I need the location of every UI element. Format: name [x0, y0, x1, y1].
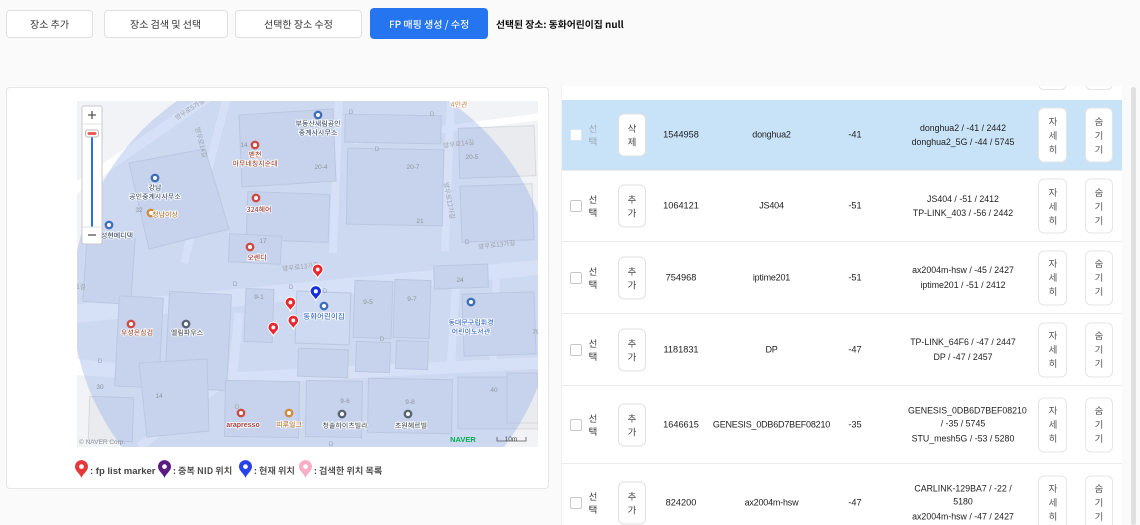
svg-text:NAVER: NAVER [450, 435, 476, 444]
svg-text:9-1: 9-1 [254, 294, 264, 301]
svg-text:arapresso: arapresso [226, 422, 259, 429]
svg-text:30: 30 [96, 384, 104, 391]
svg-text:D: D [235, 405, 240, 411]
svg-text:D: D [98, 359, 103, 365]
svg-text:21: 21 [416, 218, 424, 225]
svg-text:D: D [375, 147, 380, 153]
svg-text:9-8: 9-8 [405, 399, 415, 406]
svg-text:17: 17 [259, 238, 267, 245]
svg-text:D: D [233, 282, 238, 288]
svg-text:D: D [323, 289, 328, 295]
svg-text:20-7: 20-7 [406, 164, 419, 171]
svg-text:9-5: 9-5 [363, 299, 373, 306]
svg-text:9-6: 9-6 [340, 398, 350, 405]
svg-text:D: D [349, 110, 354, 116]
svg-text:14: 14 [240, 142, 248, 149]
svg-text:79: 79 [532, 329, 538, 336]
svg-text:9-7: 9-7 [407, 296, 417, 303]
svg-text:40: 40 [490, 387, 498, 394]
svg-text:D: D [430, 112, 435, 118]
svg-text:D: D [289, 285, 294, 291]
svg-text:D: D [329, 442, 334, 447]
svg-text:20-5: 20-5 [465, 154, 478, 161]
svg-text:20-4: 20-4 [314, 164, 327, 171]
svg-text:10m: 10m [505, 436, 518, 443]
svg-text:© NAVER Corp.: © NAVER Corp. [79, 438, 125, 446]
svg-text:D: D [380, 337, 385, 343]
svg-text:14: 14 [155, 393, 163, 400]
svg-text:D: D [465, 240, 470, 246]
svg-text:24: 24 [456, 277, 464, 284]
svg-text:32: 32 [135, 207, 143, 214]
